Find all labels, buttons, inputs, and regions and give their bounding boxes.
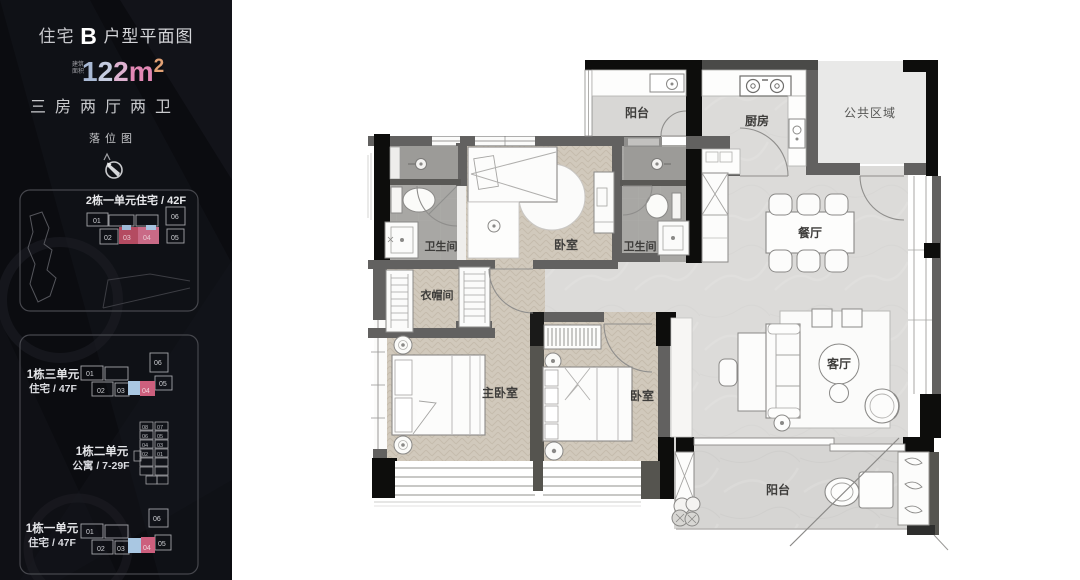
svg-text:客厅: 客厅 <box>826 356 851 371</box>
svg-text:卫生间: 卫生间 <box>624 239 657 253</box>
svg-text:阳台: 阳台 <box>766 482 790 497</box>
svg-text:阳台: 阳台 <box>625 105 649 120</box>
svg-text:衣帽间: 衣帽间 <box>421 288 454 302</box>
svg-text:卧室: 卧室 <box>554 237 578 252</box>
svg-text:公共区域: 公共区域 <box>844 106 896 120</box>
svg-text:卧室: 卧室 <box>630 388 654 403</box>
svg-text:主卧室: 主卧室 <box>482 385 518 400</box>
svg-text:餐厅: 餐厅 <box>798 225 822 240</box>
svg-text:卫生间: 卫生间 <box>425 239 458 253</box>
svg-text:厨房: 厨房 <box>745 113 769 128</box>
